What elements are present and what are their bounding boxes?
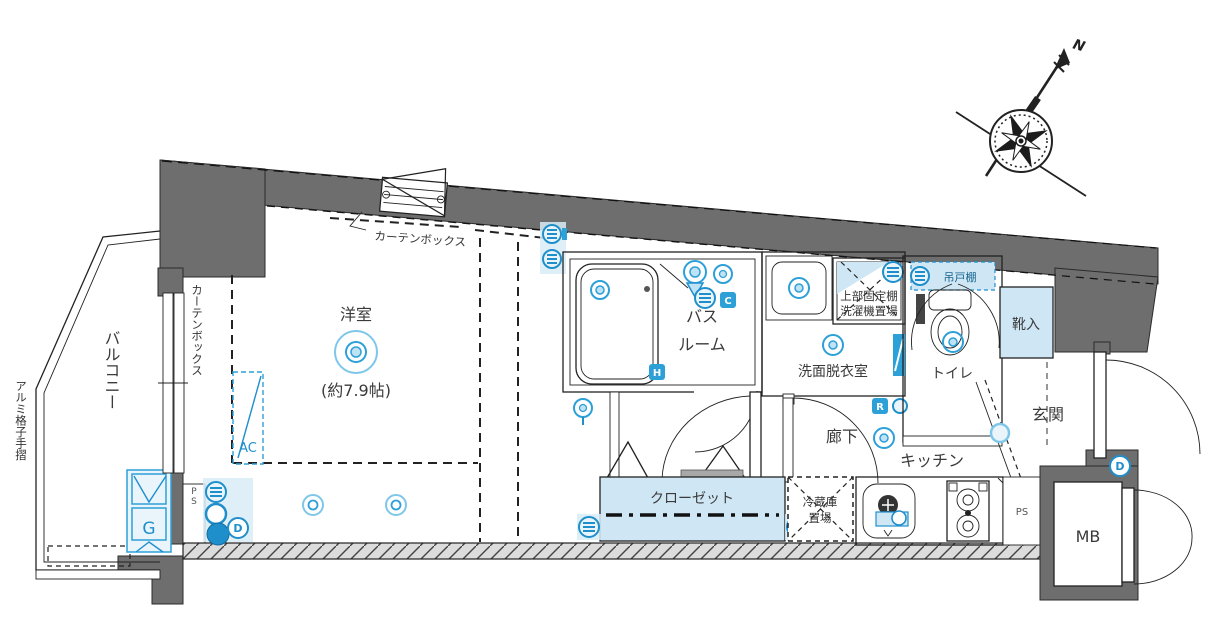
fridge-place: 冷蔵庫 置場 bbox=[788, 477, 853, 541]
sensor-ring-icon bbox=[991, 424, 1009, 442]
fridge-label-1: 冷蔵庫 bbox=[803, 495, 838, 509]
shoe-cabinet-label: 靴入 bbox=[1012, 317, 1040, 333]
vent-icon bbox=[911, 267, 929, 285]
washroom-label: 洗面脱衣室 bbox=[798, 363, 868, 380]
vent-icon bbox=[206, 482, 226, 502]
washer-place-box: 上部固定棚 洗濯機置場 bbox=[833, 258, 905, 324]
h-badge: H bbox=[649, 364, 665, 380]
hanging-cupboard: 吊戸棚 bbox=[911, 262, 995, 290]
sensor-icon bbox=[207, 523, 229, 545]
equipment-icon-cluster-left: D bbox=[203, 478, 253, 545]
vent-icon bbox=[695, 288, 715, 308]
water-heater-unit: G bbox=[127, 470, 171, 552]
svg-text:R: R bbox=[876, 402, 884, 413]
svg-text:D: D bbox=[233, 522, 242, 535]
air-conditioner-label: AC bbox=[239, 441, 257, 456]
d-badge-entrance: D bbox=[1110, 456, 1130, 476]
balcony-label: バルコニー bbox=[102, 330, 121, 410]
meter-box-label: MB bbox=[1076, 527, 1101, 546]
hanging-cupboard-label: 吊戸棚 bbox=[944, 270, 977, 284]
bathroom-label-1: バス bbox=[686, 307, 718, 326]
svg-text:C: C bbox=[724, 296, 731, 307]
svg-text:D: D bbox=[1115, 460, 1124, 473]
water-heater-label: G bbox=[142, 519, 155, 539]
kitchen-label: キッチン bbox=[900, 451, 964, 470]
fridge-label-2: 置場 bbox=[809, 511, 832, 525]
bathroom-label-2: ルーム bbox=[678, 335, 726, 354]
western-room-label: 洋室 bbox=[340, 305, 372, 324]
floorplan-drawing: バルコニー アルミ格子手摺 G PS カーテンボックス bbox=[0, 0, 1208, 622]
vent-icon bbox=[883, 262, 903, 282]
pipe-space-left: PS bbox=[183, 484, 205, 544]
western-room-size: (約7.9帖) bbox=[321, 381, 391, 400]
vent-icon bbox=[579, 517, 599, 537]
d-badge-room: D bbox=[228, 518, 248, 538]
pipe-space-right-label: PS bbox=[1016, 507, 1028, 518]
entrance-label: 玄関 bbox=[1032, 405, 1064, 424]
vent-icon bbox=[543, 250, 561, 268]
curtain-box-left-label: カーテンボックス bbox=[190, 284, 204, 376]
svg-text:H: H bbox=[653, 368, 661, 379]
handrail-label: アルミ格子手摺 bbox=[14, 380, 28, 461]
floorplan-page: バルコニー アルミ格子手摺 G PS カーテンボックス bbox=[0, 0, 1208, 622]
downlight-icon bbox=[206, 504, 226, 524]
hallway-label: 廊下 bbox=[826, 427, 858, 446]
upper-shelf-label: 上部固定棚 bbox=[840, 289, 898, 303]
toilet-label: トイレ bbox=[931, 366, 973, 382]
vent-icon bbox=[543, 225, 561, 243]
c-badge: C bbox=[720, 292, 736, 308]
shoe-cabinet: 靴入 bbox=[1000, 287, 1053, 358]
washer-place-label: 洗濯機置場 bbox=[840, 304, 898, 318]
closet-label: クローゼット bbox=[650, 491, 734, 507]
pipe-space-left-label: PS bbox=[189, 487, 199, 507]
